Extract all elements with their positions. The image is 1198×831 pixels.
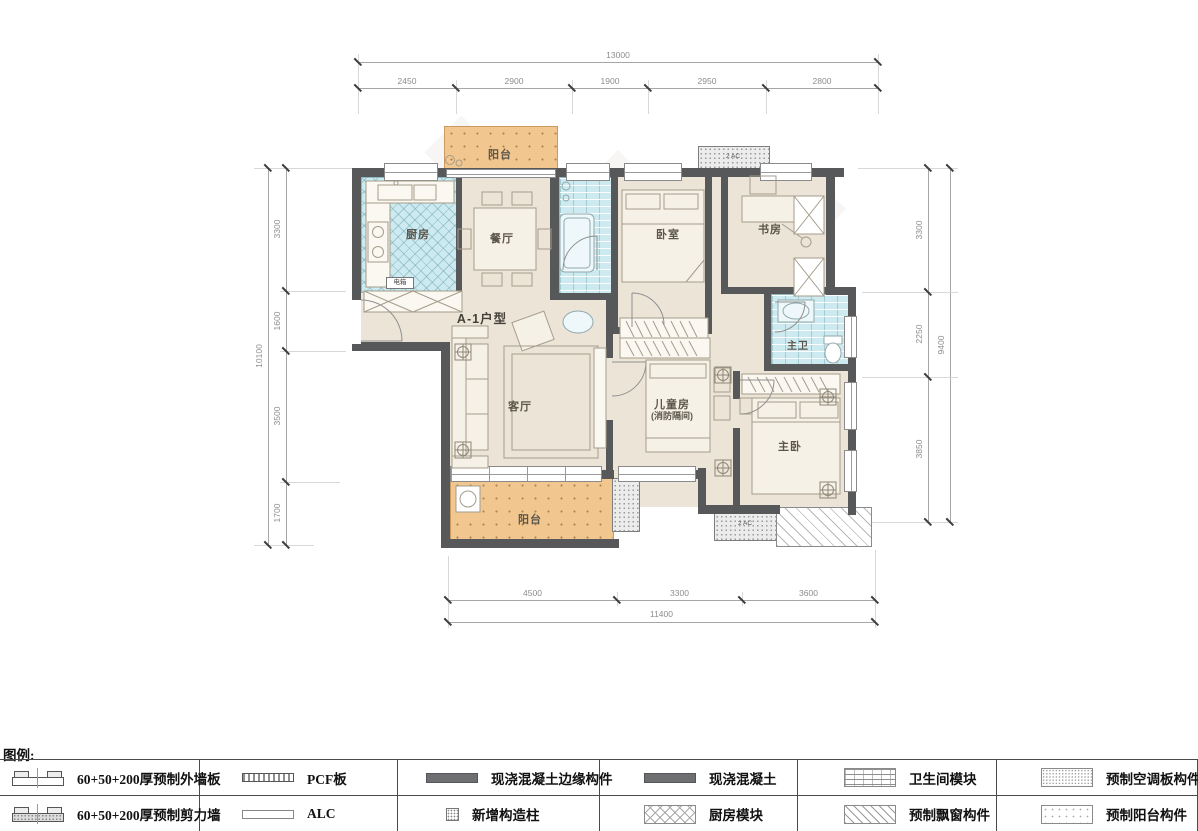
precast-shear-wall-icon: [12, 804, 64, 824]
legend-label: 预制阳台构件: [1106, 804, 1187, 824]
kitchen-fixtures: [364, 181, 462, 312]
dim-line: [928, 168, 929, 522]
room-label-master-bath: 主卫: [776, 337, 820, 352]
master-bath-fixtures: [778, 300, 842, 363]
precast-ac-slab-icon: [1041, 768, 1093, 787]
room-label-living: 客厅: [490, 398, 550, 414]
legend-cell: PCF板: [200, 760, 398, 796]
room-label-kitchen: 厨房: [388, 226, 448, 242]
legend-label: 现浇混凝土边缘构件: [491, 768, 613, 788]
legend-cell: 现浇混凝土边缘构件: [398, 760, 600, 796]
cast-in-place-concrete-icon: [644, 773, 696, 783]
dim-line: [286, 168, 287, 545]
ac-label-bottom: 2 AC: [714, 521, 776, 528]
legend-cell: 预制阳台构件: [997, 796, 1198, 831]
legend-cell: 预制飘窗构件: [798, 796, 997, 831]
legend-cell: 60+50+200厚预制外墙板: [0, 760, 200, 796]
dim-bottom-seg: 3300: [617, 588, 742, 598]
room-label-balcony-top: 阳台: [444, 146, 556, 162]
legend-cell: 预制空调板构件: [997, 760, 1198, 796]
dim-bottom-seg: 3600: [742, 588, 875, 598]
legend-label: PCF板: [307, 768, 347, 788]
dim-top-seg: 2450: [358, 76, 456, 86]
kitchen-module-icon: [644, 805, 696, 824]
legend-label: 新增构造柱: [472, 804, 540, 824]
legend-label: 卫生间模块: [909, 768, 977, 788]
legend-label: 厨房模块: [709, 804, 763, 824]
precast-bay-window-icon: [844, 805, 896, 824]
legend-cell: 厨房模块: [600, 796, 798, 831]
dim-top-seg: 2900: [456, 76, 572, 86]
electrical-box-label: 电箱: [386, 277, 414, 289]
legend-label: ALC: [307, 806, 336, 822]
unit-type-label: A-1户型: [440, 308, 524, 327]
dim-top-seg: 2800: [766, 76, 878, 86]
legend-label: 预制飘窗构件: [909, 804, 990, 824]
cast-in-place-concrete-edge-icon: [426, 773, 478, 783]
dim-right-seg: 2250: [914, 312, 924, 356]
dim-top-seg: 2950: [648, 76, 766, 86]
pcf-panel-icon: [242, 773, 294, 782]
legend-label: 现浇混凝土: [709, 768, 777, 788]
dim-bottom-total: 11400: [448, 609, 875, 619]
dim-line: [268, 168, 269, 545]
legend-label: 预制空调板构件: [1106, 768, 1198, 788]
living-room-furniture: [452, 311, 606, 468]
new-structural-column-icon: [446, 808, 459, 821]
dim-left-seg: 3500: [272, 394, 282, 438]
dim-left-seg: 1700: [272, 491, 282, 535]
dim-bottom-seg: 4500: [448, 588, 617, 598]
dim-line: [950, 168, 951, 522]
dim-top-total: 13000: [358, 50, 878, 60]
precast-balcony-icon: [1041, 805, 1093, 824]
legend-table: 60+50+200厚预制外墙板 PCF板 现浇混凝土边缘构件 现浇混凝土 卫生间…: [0, 759, 1198, 831]
dim-left-seg: 1600: [272, 299, 282, 343]
dim-top-seg: 1900: [572, 76, 648, 86]
children-room-furniture: [620, 338, 730, 452]
dim-left-total: 10100: [254, 334, 264, 378]
legend-cell: ALC: [200, 796, 398, 831]
room-label-children-sub: (消防隔间): [630, 409, 714, 422]
dim-line: [358, 62, 878, 63]
room-label-dining: 餐厅: [472, 230, 532, 246]
bathroom-module-icon: [844, 768, 896, 787]
legend-cell: 60+50+200厚预制剪力墙: [0, 796, 200, 831]
alc-panel-icon: [242, 810, 294, 819]
legend-cell: 现浇混凝土: [600, 760, 798, 796]
dim-line: [448, 600, 875, 601]
floor-plan-sheet: 13000 2450 2900 1900 2950 2800 3300 1600…: [0, 0, 1198, 831]
room-label-master-bedroom: 主卧: [762, 438, 818, 454]
ac-label-top: 2 AC: [698, 154, 768, 161]
dim-right-seg: 3850: [914, 427, 924, 471]
dim-left-seg: 3300: [272, 207, 282, 251]
dim-line: [358, 88, 878, 89]
bedroom-furniture: [620, 190, 708, 340]
room-label-bedroom: 卧室: [638, 226, 698, 242]
legend-cell: 卫生间模块: [798, 760, 997, 796]
room-label-balcony-bottom: 阳台: [470, 511, 590, 527]
precast-exterior-wall-panel-icon: [12, 768, 64, 788]
room-label-study: 书房: [742, 221, 798, 237]
dim-right-total: 9400: [936, 323, 946, 367]
dim-right-seg: 3300: [914, 208, 924, 252]
legend-cell: 新增构造柱: [398, 796, 600, 831]
dim-line: [448, 622, 875, 623]
